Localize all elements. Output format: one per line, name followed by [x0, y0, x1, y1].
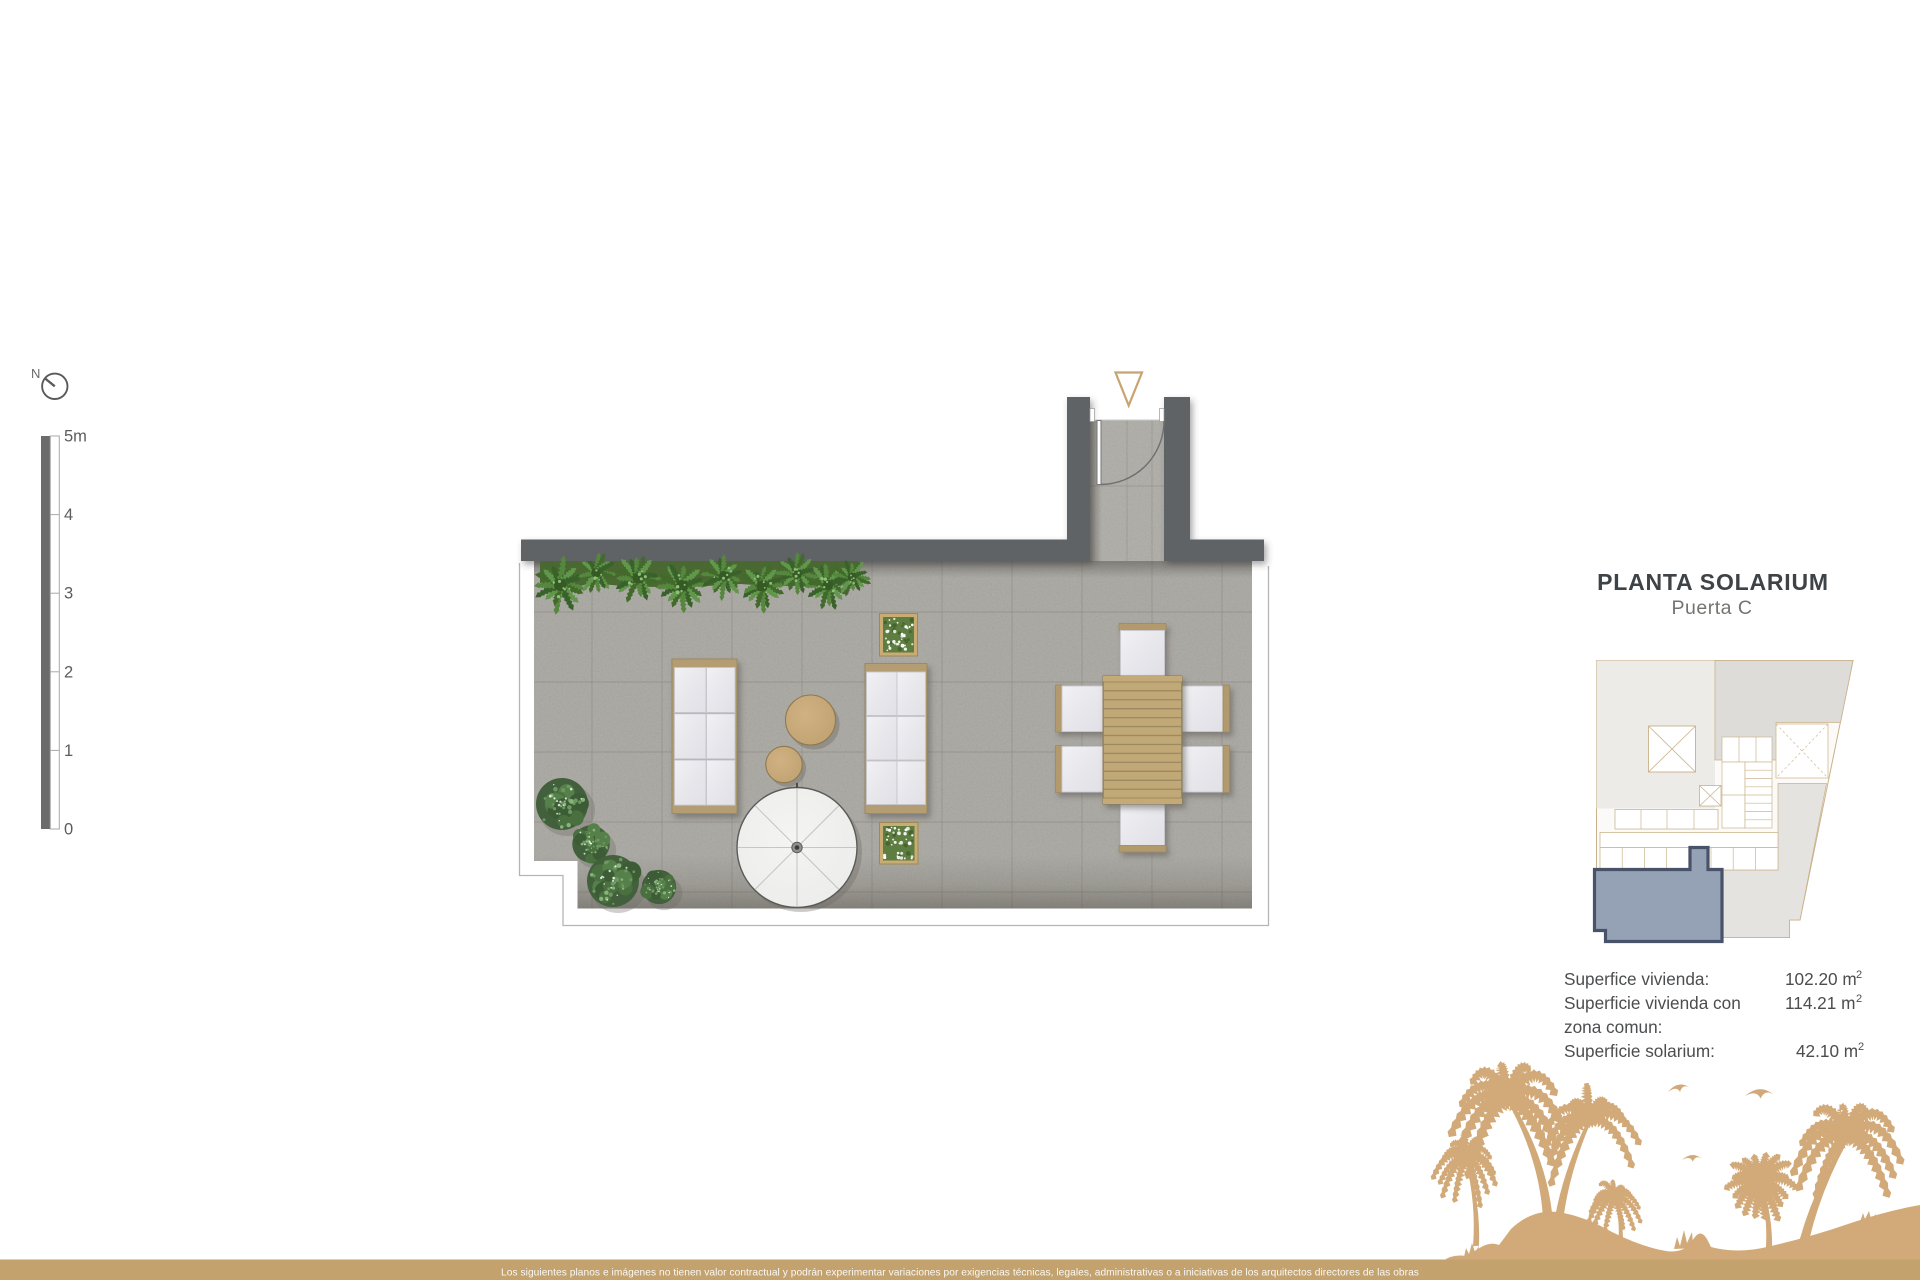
svg-text:2: 2 — [1856, 969, 1862, 981]
svg-text:114.21 m: 114.21 m — [1785, 993, 1855, 1013]
svg-text:N: N — [31, 366, 40, 381]
svg-text:Superficie solarium:: Superficie solarium: — [1564, 1041, 1715, 1061]
svg-text:PLANTA SOLARIUM: PLANTA SOLARIUM — [1597, 569, 1829, 595]
svg-text:2: 2 — [64, 663, 73, 681]
svg-text:zona comun:: zona comun: — [1564, 1017, 1662, 1037]
svg-text:2: 2 — [1856, 993, 1862, 1005]
svg-text:Los siguientes planos e imágen: Los siguientes planos e imágenes no tien… — [501, 1268, 1419, 1279]
svg-text:Puerta C: Puerta C — [1672, 597, 1753, 619]
svg-text:Superficie vivienda con: Superficie vivienda con — [1564, 993, 1741, 1013]
svg-text:4: 4 — [64, 506, 73, 524]
svg-text:3: 3 — [64, 585, 73, 603]
svg-text:Superfice vivienda:: Superfice vivienda: — [1564, 969, 1709, 989]
svg-text:42.10 m: 42.10 m — [1796, 1041, 1858, 1061]
svg-text:5m: 5m — [64, 428, 87, 446]
svg-text:2: 2 — [1858, 1041, 1864, 1053]
svg-text:1: 1 — [64, 742, 73, 760]
svg-text:0: 0 — [64, 821, 73, 839]
svg-text:102.20 m: 102.20 m — [1785, 969, 1857, 989]
